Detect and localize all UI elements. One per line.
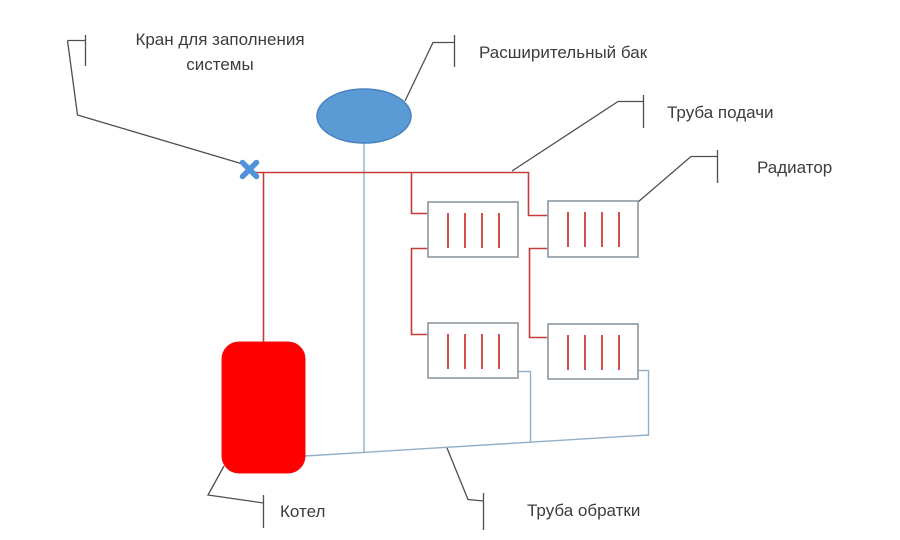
return-pipes (305, 143, 649, 456)
label-return-pipe: Труба обратки (527, 498, 640, 523)
radiator-1 (428, 202, 518, 257)
radiator-4 (548, 324, 638, 379)
riser-left-bottom (412, 249, 429, 335)
label-radiator: Радиатор (757, 155, 832, 180)
radiator-bodies (428, 201, 638, 379)
return-pipe-radiator-4 (638, 371, 649, 437)
radiator-3 (428, 323, 518, 378)
label-supply-pipe: Труба подачи (667, 100, 774, 125)
expansion-tank-shape (317, 89, 411, 143)
riser-left-top (412, 173, 429, 214)
fill-valve-x-icon (243, 163, 257, 177)
callout-return-pipe (447, 448, 484, 530)
diagram-canvas (0, 0, 900, 540)
return-pipe-radiator-3 (518, 372, 531, 444)
heating-system-diagram: Кран для заполнения системы Расширительн… (0, 0, 900, 540)
label-expansion-tank: Расширительный бак (479, 40, 647, 65)
return-pipe-main (305, 435, 648, 456)
callout-expansion-tank (405, 35, 455, 101)
label-boiler: Котел (280, 499, 325, 524)
callout-boiler (208, 466, 264, 528)
riser-right-bottom (530, 249, 549, 338)
radiator-2 (548, 201, 638, 257)
callout-radiator (638, 150, 718, 202)
callout-supply-pipe (512, 95, 644, 171)
label-fill-valve: Кран для заполнения системы (105, 27, 335, 77)
boiler-shape (222, 342, 305, 473)
